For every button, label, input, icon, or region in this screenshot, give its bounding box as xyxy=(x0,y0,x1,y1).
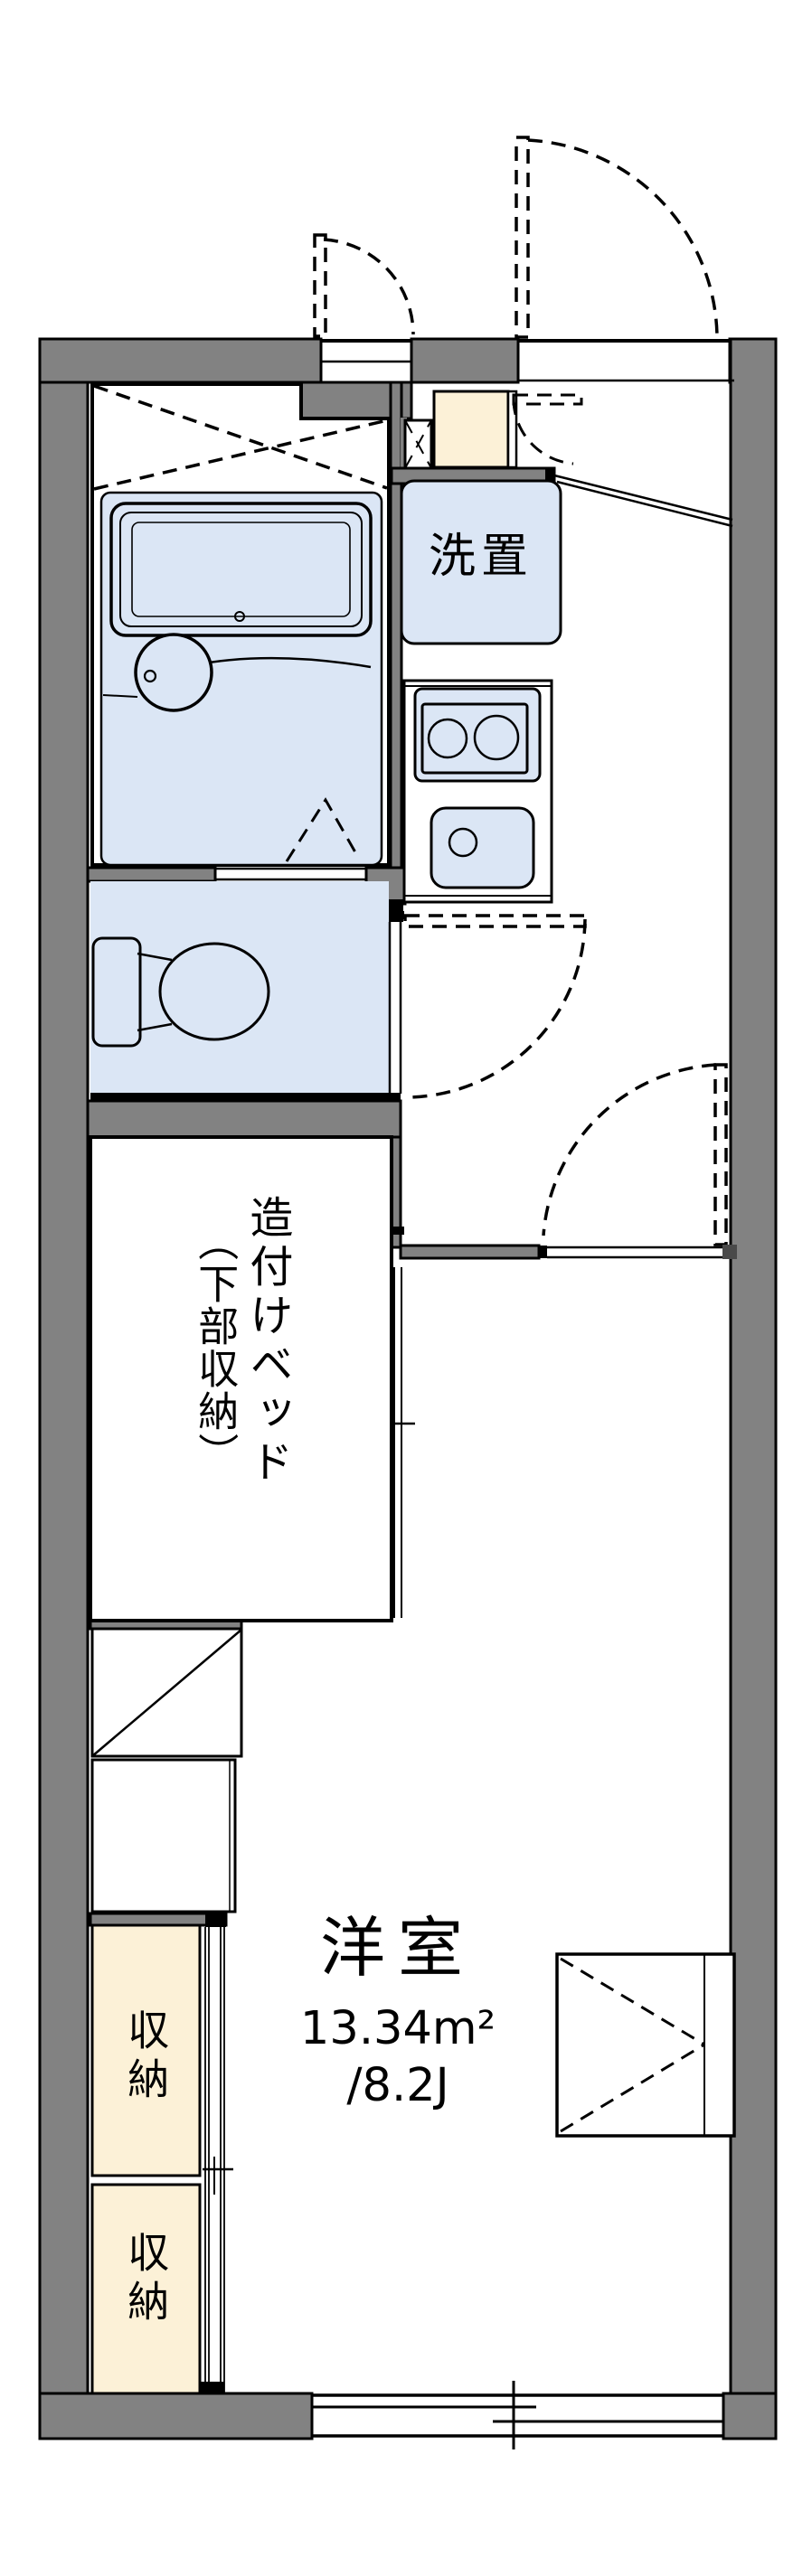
corridor-door xyxy=(405,916,585,1097)
floor-plan-drawing xyxy=(0,0,812,2576)
room-door xyxy=(543,1065,737,1259)
room-name-label: 洋室 xyxy=(289,1914,506,1983)
floor-plan-canvas: 洗置 造付けベッド （下部収納） 収納 収納 洋室 13.34m² /8.2J xyxy=(0,0,812,2576)
toilet-room xyxy=(90,881,403,1101)
bathtub-unit xyxy=(101,493,382,865)
storage-sliding-doors xyxy=(203,1927,233,2393)
storage-upper-label: 収納 xyxy=(124,2008,167,2106)
sink xyxy=(431,808,533,888)
room-area-jo-label: /8.2J xyxy=(289,2062,506,2111)
sliding-window xyxy=(312,2381,723,2449)
wall-table xyxy=(557,1954,734,2136)
genkan-step xyxy=(554,475,732,526)
shoe-cabinet xyxy=(434,391,508,467)
storage-lower-label: 収納 xyxy=(124,2231,167,2328)
bathroom xyxy=(92,384,389,865)
toilet-door xyxy=(389,899,403,1094)
bed-label-line2: （下部収納） xyxy=(194,1220,236,1475)
desk-counter xyxy=(92,1629,241,1912)
room-area-m2-label: 13.34m² xyxy=(289,2005,506,2054)
stove xyxy=(415,689,540,781)
entrance-door xyxy=(516,137,717,337)
bed-label-line1: 造付けベッド xyxy=(244,1195,289,1488)
entrance-inner-swing xyxy=(514,395,581,464)
top-openings xyxy=(321,341,734,381)
washer-label: 洗置 xyxy=(401,532,561,582)
top-window-door xyxy=(315,235,413,336)
